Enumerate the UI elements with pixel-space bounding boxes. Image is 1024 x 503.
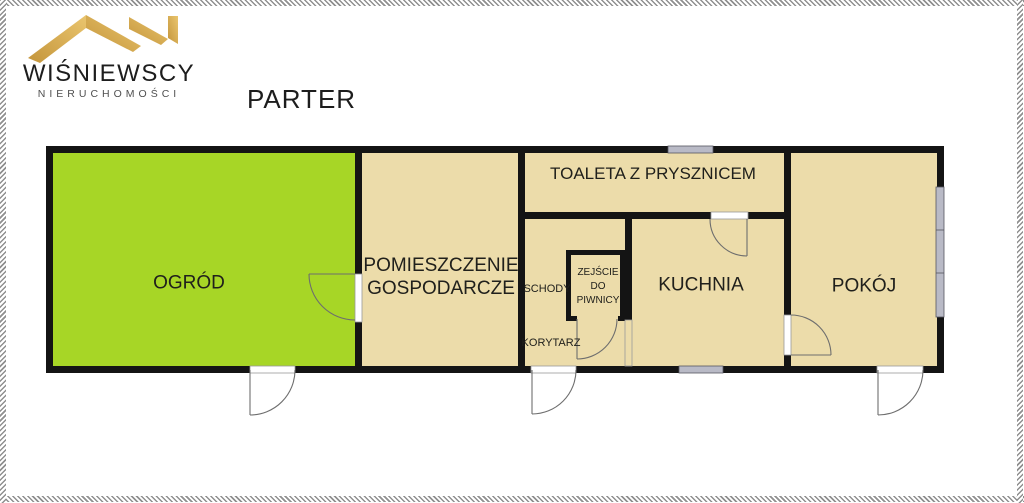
roof-logo-icon xyxy=(28,15,178,63)
room-label-zejscie-line1: ZEJŚCIE xyxy=(577,266,620,280)
opening-toilet-kitchen xyxy=(711,212,748,219)
opening-room-interior xyxy=(784,315,791,355)
window-kitchen-bottom xyxy=(679,366,723,373)
room-label-pomieszczenie-line2: GOSPODARCZE xyxy=(363,277,518,300)
door-icon-room-exterior xyxy=(878,370,923,415)
opening-room-exterior xyxy=(877,366,923,373)
room-label-kuchnia: KUCHNIA xyxy=(658,274,744,297)
room-label-ogrod: OGRÓD xyxy=(153,272,225,295)
window-room-right xyxy=(936,187,944,317)
room-label-pomieszczenie-line1: POMIESZCZENIE xyxy=(363,254,518,277)
opening-corridor-kitchen xyxy=(625,320,632,366)
room-label-toaleta: TOALETA Z PRYSZNICEM xyxy=(550,164,756,184)
room-area-garden xyxy=(53,153,355,366)
room-label-zejscie-line2: DO xyxy=(577,280,620,294)
brand-tagline: NIERUCHOMOŚCI xyxy=(18,88,200,100)
opening-garden-utility xyxy=(355,274,362,322)
room-label-schody: SCHODY xyxy=(523,283,570,295)
room-label-pokoj: POKÓJ xyxy=(832,275,896,298)
window-toilet-top xyxy=(668,146,713,153)
brand-name: WIŚNIEWSCY xyxy=(18,60,200,88)
opening-garden-exterior xyxy=(250,366,295,373)
room-label-zejscie: ZEJŚCIE DO PIWNICY xyxy=(577,266,620,308)
door-icon-garden-exterior xyxy=(250,370,295,415)
room-label-pomieszczenie: POMIESZCZENIE GOSPODARCZE xyxy=(363,254,518,300)
room-label-zejscie-line3: PIWNICY xyxy=(577,294,620,308)
page-title: PARTER xyxy=(247,84,356,115)
room-label-korytarz: KORYTARZ xyxy=(522,337,581,349)
door-icon-corridor-exterior xyxy=(532,370,576,414)
opening-corridor-exterior xyxy=(531,366,576,373)
